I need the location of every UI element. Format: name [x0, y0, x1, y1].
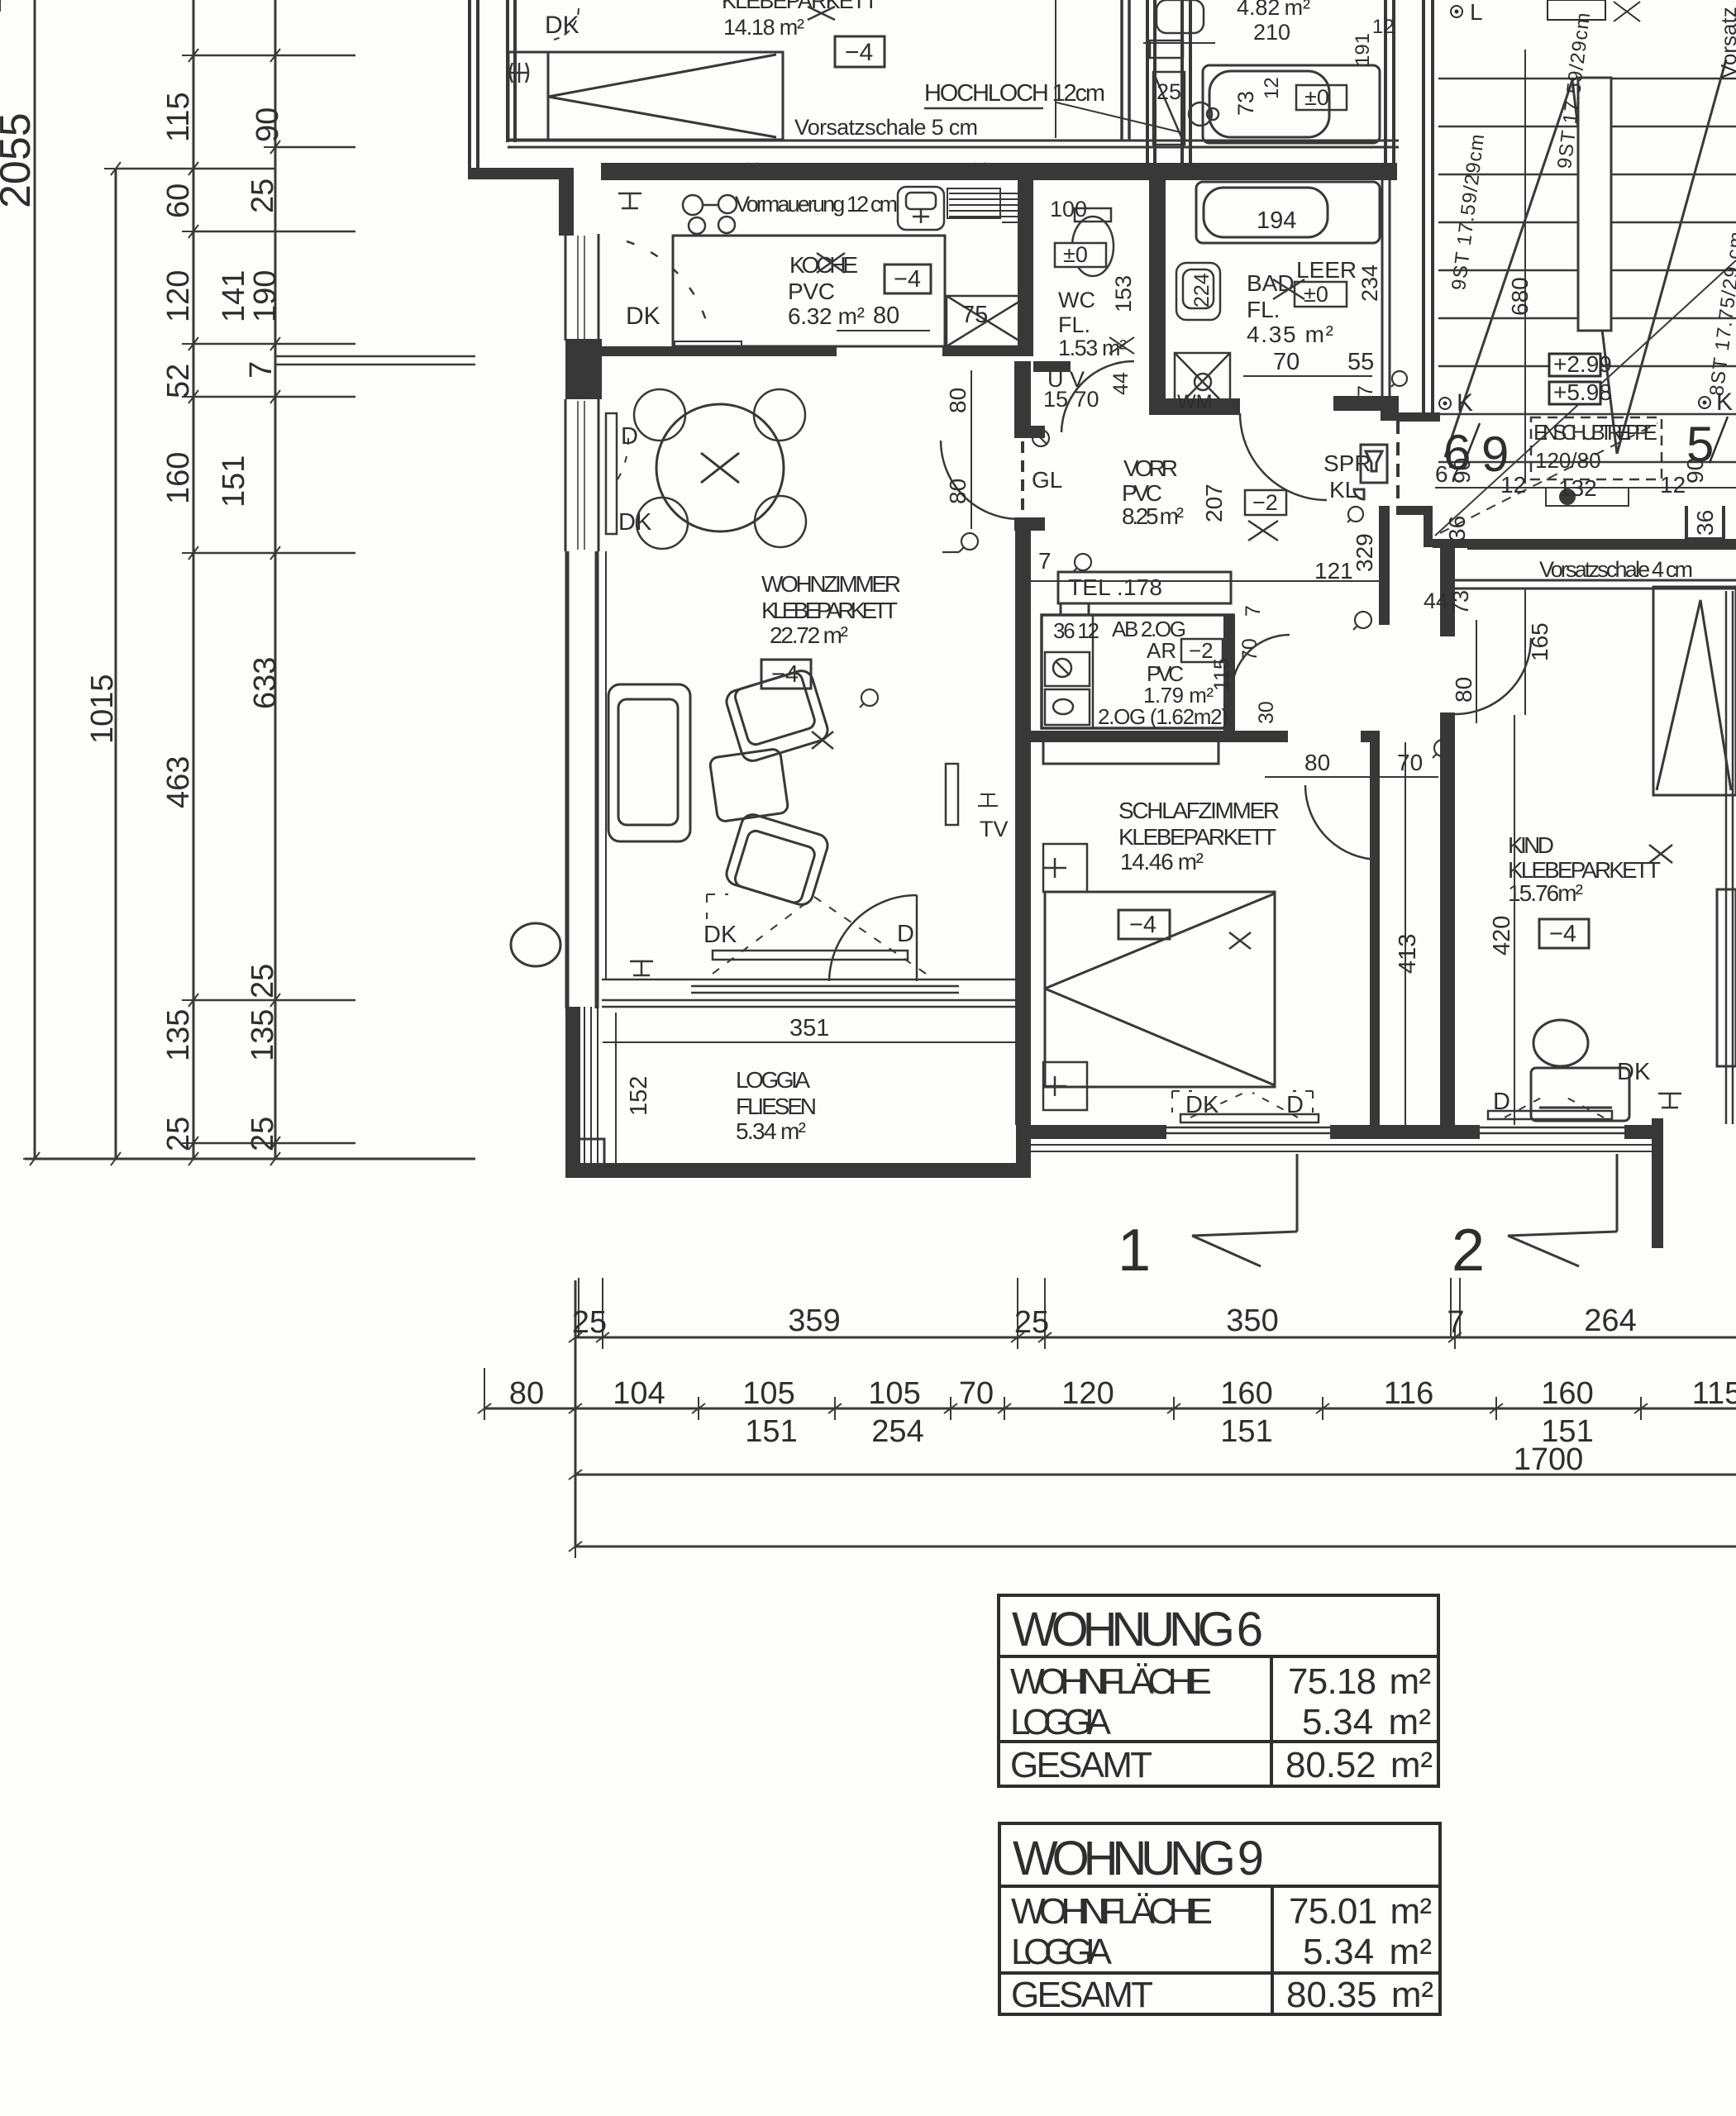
svg-text:SPR: SPR [1323, 450, 1371, 476]
svg-text:75.01 m²: 75.01 m² [1289, 1891, 1432, 1932]
svg-text:WOHNFLÄCHE: WOHNFLÄCHE [1011, 1891, 1213, 1932]
svg-text:8.25 m²: 8.25 m² [1122, 503, 1184, 529]
svg-text:25: 25 [572, 1305, 607, 1340]
svg-text:116: 116 [1384, 1376, 1434, 1411]
svg-text:135: 135 [161, 1009, 196, 1061]
svg-text:30: 30 [1255, 701, 1278, 724]
svg-text:151: 151 [1220, 1414, 1272, 1449]
svg-text:+2.99: +2.99 [1553, 351, 1612, 377]
svg-text:25: 25 [246, 179, 280, 213]
svg-text:90: 90 [1682, 458, 1708, 484]
svg-text:2: 2 [1452, 1218, 1485, 1284]
svg-text:141: 141 [217, 270, 251, 322]
svg-text:FLIESEN: FLIESEN [736, 1094, 817, 1119]
svg-text:WOHNZIMMER: WOHNZIMMER [761, 571, 901, 597]
svg-text:TEL .178: TEL .178 [1068, 574, 1162, 600]
svg-text:LOGGIA: LOGGIA [736, 1067, 810, 1093]
svg-text:70: 70 [1397, 750, 1423, 775]
svg-text:AR: AR [1147, 638, 1176, 663]
svg-text:80: 80 [1304, 750, 1330, 775]
svg-text:LOGGIA: LOGGIA [1010, 1702, 1112, 1742]
svg-text:5.34 m²: 5.34 m² [736, 1118, 806, 1144]
svg-text:254: 254 [871, 1414, 923, 1449]
svg-text:90: 90 [1449, 458, 1475, 484]
svg-text:22.72 m²: 22.72 m² [770, 622, 848, 648]
svg-text:KLEBEPARKETT: KLEBEPARKETT [722, 0, 878, 13]
svg-text:224: 224 [1190, 273, 1214, 307]
svg-text:KOCHE: KOCHE [789, 252, 858, 278]
svg-text:75: 75 [961, 302, 988, 328]
svg-text:80.52 m²: 80.52 m² [1285, 1745, 1433, 1785]
svg-text:BAD: BAD [1247, 270, 1295, 296]
svg-text:115: 115 [1210, 658, 1233, 691]
svg-text:73: 73 [1233, 91, 1258, 116]
svg-text:55: 55 [1347, 349, 1374, 375]
svg-text:190: 190 [248, 270, 283, 322]
svg-text:120: 120 [1061, 1376, 1114, 1411]
svg-text:12: 12 [1372, 16, 1395, 38]
svg-text:1015: 1015 [85, 674, 120, 744]
svg-text:±0: ±0 [1304, 85, 1329, 110]
svg-text:7: 7 [1242, 605, 1265, 617]
svg-text:120: 120 [161, 270, 196, 322]
svg-text:210: 210 [1253, 20, 1290, 45]
svg-text:80: 80 [945, 479, 971, 504]
svg-text:−4: −4 [1549, 921, 1576, 947]
svg-text:234: 234 [1357, 264, 1382, 302]
svg-text:105: 105 [868, 1376, 920, 1411]
svg-text:25: 25 [1157, 79, 1181, 104]
svg-text:PVC: PVC [788, 279, 835, 304]
svg-text:25: 25 [246, 964, 280, 998]
svg-text:44: 44 [1109, 372, 1133, 395]
svg-text:DK: DK [1617, 1059, 1651, 1085]
svg-text:680: 680 [1507, 277, 1533, 316]
svg-text:15.76m²: 15.76m² [1508, 880, 1583, 906]
svg-text:115: 115 [1692, 1376, 1736, 1411]
svg-text:60: 60 [161, 183, 196, 218]
svg-text:KLEBEPARKETT: KLEBEPARKETT [1118, 824, 1276, 850]
svg-text:GESAMT: GESAMT [1010, 1745, 1152, 1785]
svg-text:4.82 m²: 4.82 m² [1237, 0, 1310, 20]
svg-text:HOCHLOCH 12cm: HOCHLOCH 12cm [924, 80, 1105, 107]
svg-text:25: 25 [1014, 1305, 1049, 1340]
svg-text:LEER: LEER [1296, 257, 1357, 283]
svg-text:36 12: 36 12 [1053, 618, 1099, 643]
svg-text:14.18 m²: 14.18 m² [723, 15, 804, 40]
svg-text:80: 80 [1451, 677, 1476, 703]
svg-text:151: 151 [745, 1414, 797, 1449]
svg-text:105: 105 [742, 1376, 794, 1411]
svg-text:7: 7 [1038, 548, 1052, 574]
svg-text:420: 420 [1489, 916, 1515, 956]
svg-text:633: 633 [248, 657, 283, 709]
svg-text:PVC: PVC [1122, 480, 1162, 506]
svg-text:TV: TV [980, 817, 1009, 841]
svg-text:−4: −4 [845, 39, 873, 66]
svg-text:135: 135 [246, 1009, 280, 1061]
svg-text:160: 160 [1220, 1376, 1272, 1411]
svg-text:15 70: 15 70 [1043, 387, 1099, 412]
svg-text:351: 351 [789, 1015, 829, 1041]
svg-text:GL: GL [1032, 467, 1062, 493]
svg-text:194: 194 [1257, 207, 1296, 234]
svg-text:WOHNFLÄCHE: WOHNFLÄCHE [1010, 1661, 1212, 1702]
svg-text:121: 121 [1314, 558, 1353, 584]
svg-text:70: 70 [1273, 349, 1300, 375]
svg-text:329: 329 [1352, 533, 1377, 572]
svg-text:36: 36 [1444, 516, 1470, 541]
svg-text:Vormauerung 12 cm: Vormauerung 12 cm [735, 192, 898, 217]
svg-text:75.18 m²: 75.18 m² [1288, 1661, 1431, 1702]
svg-text:±0: ±0 [1304, 282, 1328, 307]
svg-text:80: 80 [873, 303, 899, 329]
svg-text:KLEBEPARKETT: KLEBEPARKETT [1508, 857, 1661, 883]
svg-text:44: 44 [1424, 589, 1448, 613]
svg-text:7: 7 [244, 361, 279, 379]
svg-text:−4: −4 [1129, 912, 1157, 938]
svg-text:−2: −2 [1252, 490, 1278, 515]
svg-text:463: 463 [161, 756, 196, 808]
svg-text:EINSCHUBTREPPE: EINSCHUBTREPPE [1533, 420, 1657, 445]
svg-text:80: 80 [509, 1376, 544, 1411]
svg-text:160: 160 [161, 452, 196, 504]
svg-text:52: 52 [161, 364, 196, 398]
svg-text:D: D [1493, 1089, 1510, 1115]
svg-text:5.34 m²: 5.34 m² [1302, 1702, 1431, 1742]
svg-text:1: 1 [1118, 1218, 1151, 1284]
svg-text:36: 36 [1692, 510, 1718, 536]
svg-text:80: 80 [945, 388, 971, 413]
svg-text:WC: WC [1058, 288, 1095, 312]
svg-text:2.OG (1.62m2): 2.OG (1.62m2) [1098, 704, 1228, 729]
svg-text:D: D [897, 921, 914, 947]
svg-text:120/80: 120/80 [1535, 448, 1601, 473]
svg-text:153: 153 [1111, 275, 1136, 312]
svg-text:104: 104 [613, 1376, 665, 1411]
svg-text:115: 115 [161, 92, 196, 142]
svg-text:2055: 2055 [0, 112, 40, 208]
svg-text:SCHLAFZIMMER: SCHLAFZIMMER [1118, 798, 1280, 823]
svg-text:FL.: FL. [1247, 297, 1280, 322]
svg-text:KLEBEPARKETT: KLEBEPARKETT [761, 598, 898, 623]
svg-text:165: 165 [1527, 622, 1552, 661]
svg-text:7: 7 [1354, 385, 1377, 397]
svg-text:1.53 m²: 1.53 m² [1058, 336, 1127, 360]
svg-text:25: 25 [161, 1117, 196, 1151]
svg-text:+5.98: +5.98 [1553, 379, 1612, 405]
svg-text:6.32 m²: 6.32 m² [788, 303, 865, 329]
svg-text:359: 359 [788, 1303, 840, 1338]
svg-text:−4: −4 [894, 266, 921, 293]
svg-text:7: 7 [1447, 1305, 1464, 1340]
svg-text:L: L [1470, 0, 1483, 25]
svg-text:K: K [1457, 389, 1473, 417]
svg-text:264: 264 [1584, 1303, 1636, 1338]
svg-text:Vorsatz: Vorsatz [1716, 7, 1736, 79]
svg-text:Vorsatzschale 4 cm: Vorsatzschale 4 cm [1539, 557, 1693, 582]
svg-text:14.46 m²: 14.46 m² [1120, 849, 1204, 875]
svg-text:GESAMT: GESAMT [1011, 1975, 1153, 2015]
svg-text:LOGGIA: LOGGIA [1011, 1932, 1113, 1972]
svg-text:±0: ±0 [1063, 242, 1088, 267]
svg-text:207: 207 [1201, 484, 1227, 522]
svg-text:DK: DK [626, 303, 661, 330]
svg-text:152: 152 [626, 1076, 652, 1116]
svg-text:151: 151 [217, 455, 251, 508]
svg-text:VORR: VORR [1123, 455, 1178, 481]
svg-text:90: 90 [250, 107, 285, 142]
svg-text:WOHNUNG 6: WOHNUNG 6 [1012, 1603, 1263, 1656]
svg-text:191: 191 [1352, 33, 1374, 66]
svg-text:25: 25 [246, 1117, 280, 1151]
svg-text:12: 12 [1500, 472, 1526, 498]
svg-text:100: 100 [1050, 197, 1087, 222]
svg-text:Vorsatzschale 5 cm: Vorsatzschale 5 cm [794, 115, 978, 140]
svg-text:K: K [1716, 388, 1733, 416]
svg-text:413: 413 [1395, 934, 1421, 974]
svg-text:DK: DK [703, 922, 737, 948]
svg-text:D: D [621, 423, 638, 450]
svg-text:WM: WM [1177, 391, 1213, 413]
svg-text:DK: DK [618, 509, 652, 536]
svg-text:1700: 1700 [1514, 1442, 1584, 1477]
svg-text:350: 350 [1226, 1303, 1278, 1338]
svg-text:5.34 m²: 5.34 m² [1303, 1932, 1432, 1972]
svg-text:73: 73 [1448, 590, 1473, 615]
svg-text:FL.: FL. [1058, 312, 1090, 337]
svg-text:160: 160 [1541, 1376, 1593, 1411]
svg-text:12: 12 [1261, 77, 1283, 99]
svg-text:132: 132 [1558, 475, 1597, 501]
svg-text:WOHNUNG 9: WOHNUNG 9 [1013, 1832, 1264, 1885]
svg-text:70: 70 [959, 1376, 994, 1411]
svg-text:80.35 m²: 80.35 m² [1286, 1975, 1433, 2015]
